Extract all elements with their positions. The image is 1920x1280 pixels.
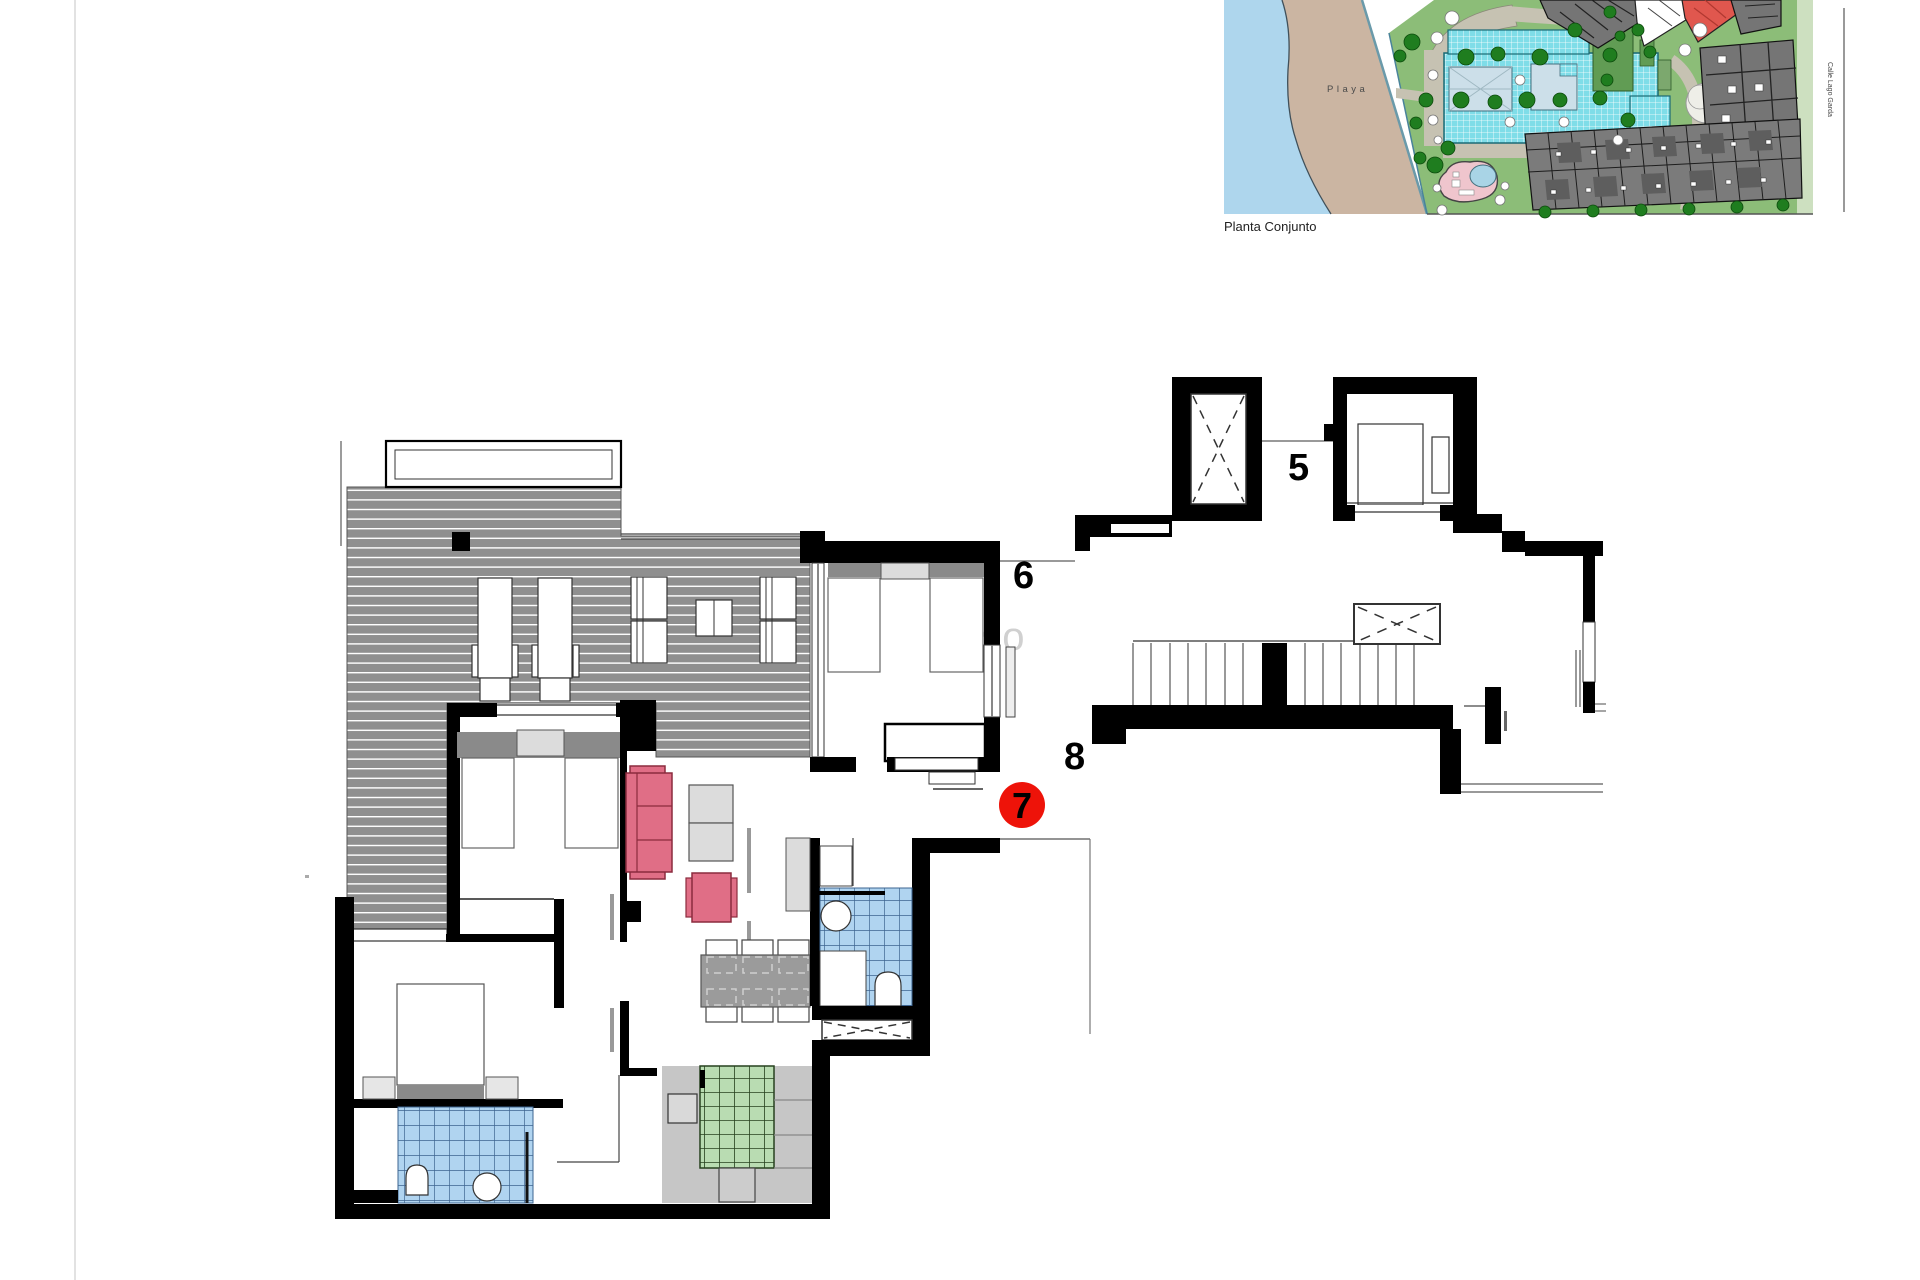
svg-text:Planta Conjunto: Planta Conjunto	[1224, 219, 1317, 234]
svg-text:7: 7	[1012, 785, 1032, 826]
svg-text:6: 6	[1013, 555, 1034, 597]
svg-text:5: 5	[1288, 447, 1309, 489]
svg-text:8: 8	[1064, 736, 1085, 778]
svg-text:Playa: Playa	[1327, 84, 1368, 95]
svg-text:Calle Lago Garda: Calle Lago Garda	[1826, 62, 1833, 117]
